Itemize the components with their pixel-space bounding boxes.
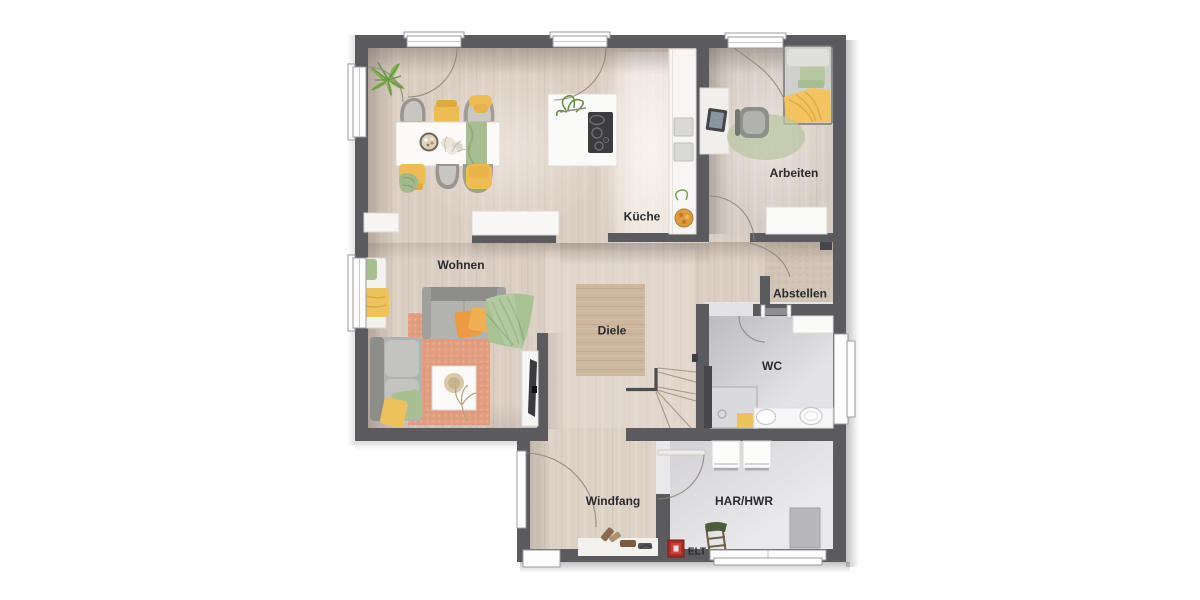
svg-text:Arbeiten: Arbeiten	[770, 166, 819, 180]
svg-text:HAR/HWR: HAR/HWR	[715, 494, 773, 508]
svg-text:Küche: Küche	[624, 210, 661, 224]
svg-text:Abstellen: Abstellen	[773, 287, 827, 301]
svg-text:Wohnen: Wohnen	[437, 258, 484, 272]
svg-text:ELT: ELT	[688, 547, 706, 558]
svg-text:Diele: Diele	[598, 324, 627, 338]
svg-text:WC: WC	[762, 359, 782, 373]
svg-text:Windfang: Windfang	[586, 494, 641, 508]
